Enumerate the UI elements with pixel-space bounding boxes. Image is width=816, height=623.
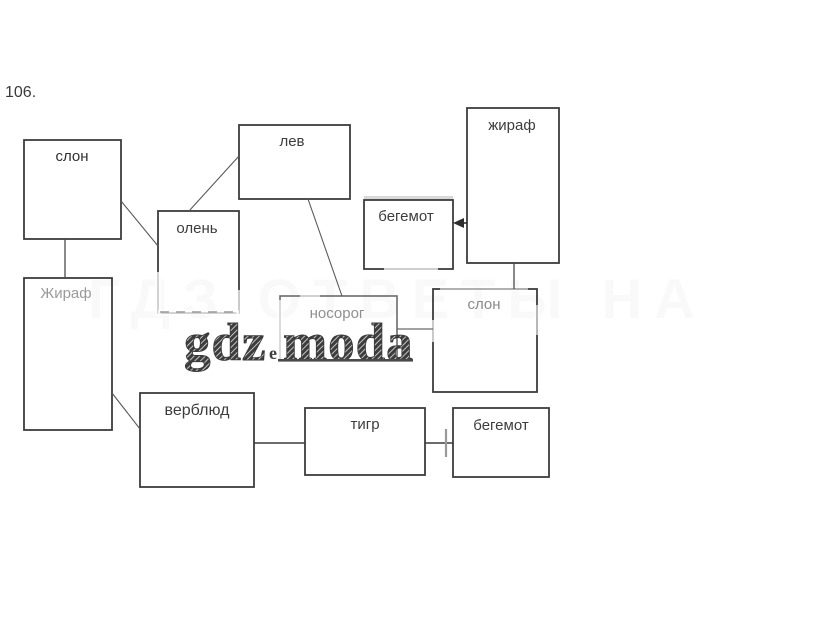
svg-text:Жираф: Жираф [40, 285, 91, 302]
svg-text:жираф: жираф [488, 117, 535, 134]
svg-text:e: e [269, 343, 277, 363]
svg-text:бегемот: бегемот [378, 208, 434, 225]
svg-text:бегемот: бегемот [473, 417, 529, 434]
svg-text:олень: олень [176, 220, 217, 237]
svg-text:лев: лев [279, 133, 304, 150]
svg-text:moda: moda [283, 314, 414, 372]
svg-text:верблюд: верблюд [165, 402, 231, 419]
svg-text:gdz: gdz [184, 314, 267, 372]
svg-text:слон: слон [467, 296, 500, 313]
svg-text:тигр: тигр [350, 416, 379, 433]
svg-text:106.: 106. [5, 84, 36, 101]
svg-text:слон: слон [55, 148, 88, 165]
